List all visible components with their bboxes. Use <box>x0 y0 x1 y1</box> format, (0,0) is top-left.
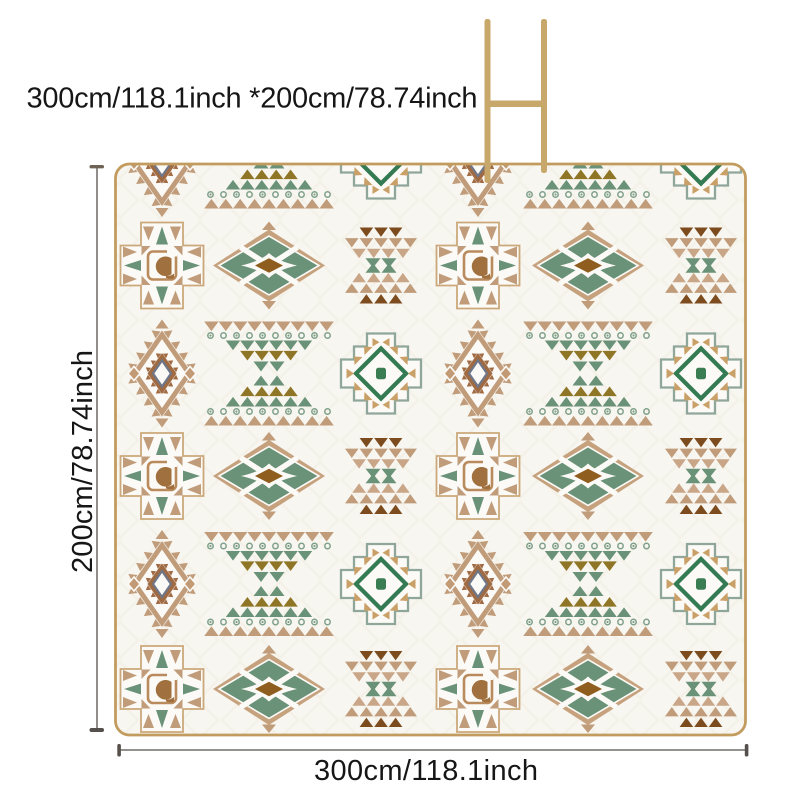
svg-text:300cm/118.1inch: 300cm/118.1inch <box>314 755 538 787</box>
svg-text:300cm/118.1inch *200cm/78.74in: 300cm/118.1inch *200cm/78.74inch <box>27 83 478 115</box>
svg-text:200cm/78.74inch: 200cm/78.74inch <box>67 350 99 573</box>
